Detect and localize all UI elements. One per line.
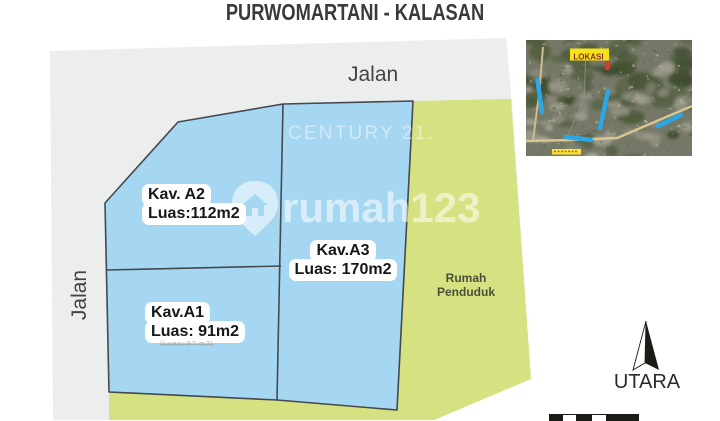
svg-text:rumah123: rumah123 xyxy=(282,184,480,231)
svg-text:LOKASI: LOKASI xyxy=(573,53,603,62)
